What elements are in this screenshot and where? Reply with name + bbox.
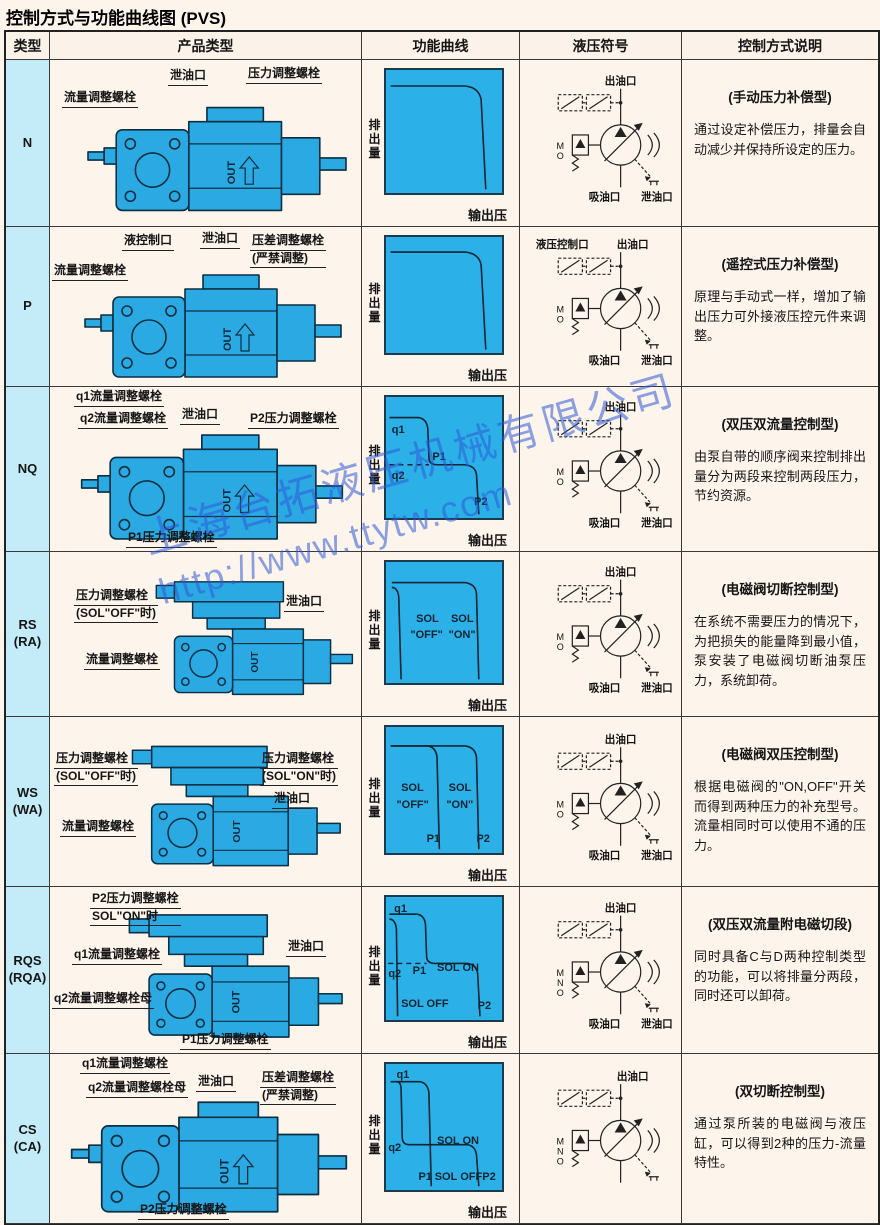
curve-annotation: P2 <box>476 833 489 845</box>
symbol-cell: 出油口 吸油口 泄油口 M O <box>520 60 682 227</box>
curve-x-label: 输出压 <box>468 1032 507 1051</box>
curve-annotation: P2 <box>482 1171 495 1183</box>
description-body: 同时具备C与D两种控制类型的功能，可以将排量分两段，同时还可以卸荷。 <box>694 947 866 1006</box>
callout: q1流量调整螺栓 <box>80 1056 170 1074</box>
svg-text:M: M <box>556 968 564 978</box>
callout: q2流量调整螺栓母 <box>52 991 154 1009</box>
pump-illustration: OUT <box>74 431 350 543</box>
callout: q2流量调整螺栓 <box>78 411 168 429</box>
type-code: N <box>23 135 32 152</box>
pump-out-port-label: OUT <box>226 161 238 185</box>
type-code: P <box>23 298 32 315</box>
callout: 流量调整螺栓 <box>60 819 136 837</box>
curve-annotation: q1 <box>394 903 407 915</box>
type-code: NQ <box>18 461 38 478</box>
pump-illustration: OUT <box>90 905 346 1049</box>
curve-plot: SOL "OFF" SOL "ON" P1 P2 <box>384 725 504 855</box>
curve-x-label: 输出压 <box>468 205 507 224</box>
curve-annotation: "ON" <box>449 629 476 641</box>
pump-illustration: OUT <box>86 100 348 218</box>
port-label-drain: 泄油口 <box>641 1017 673 1030</box>
curve-cell: 排出量 输出压 <box>362 60 520 227</box>
curve-annotation: P1 <box>427 833 440 845</box>
svg-text:O: O <box>557 151 564 161</box>
table-row-NQ: NQ OUT q1流量调整螺栓 q2流量调整螺栓 泄油口 P2压力调整螺栓 P1… <box>6 387 878 552</box>
product-cell: OUT 压力调整螺栓(SOL"OFF"时) 压力调整螺栓(SOL"ON"时) 泄… <box>50 717 362 887</box>
header-symbol: 液压符号 <box>520 32 682 60</box>
product-cell: OUT 压力调整螺栓(SOL"OFF"时) 泄油口 流量调整螺栓 <box>50 552 362 717</box>
callout: 泄油口 <box>196 1074 236 1092</box>
curve-y-label: 排出量 <box>366 946 383 988</box>
description-cell: (双切断控制型) 通过泵所装的电磁阀与液压缸，可以得到2种的压力-流量特性。 <box>682 1054 878 1224</box>
curve-graph <box>386 562 502 683</box>
svg-text:M: M <box>556 1137 564 1147</box>
hydraulic-circuit-drawing <box>558 252 659 351</box>
curve-annotation: SOL <box>416 613 439 625</box>
header-curve: 功能曲线 <box>362 32 520 60</box>
curve-annotation: q2 <box>388 1142 401 1154</box>
description-cell: (电磁阀切断控制型) 在系统不需要压力的情况下，为把损失的能量降到最小值，泵安装… <box>682 552 878 717</box>
port-label-drain: 泄油口 <box>641 354 673 367</box>
curve-cell: 排出量 q1 P1 q2 P2 输出压 <box>362 387 520 552</box>
callout: 压力调整螺栓 <box>246 66 322 84</box>
curve-annotation: P2 <box>478 1000 491 1012</box>
port-label-outlet: 出油口 <box>605 733 637 746</box>
curve-y-label: 排出量 <box>366 1114 383 1156</box>
type-cell: P <box>6 227 50 387</box>
pump-out-port-label: OUT <box>250 652 261 673</box>
type-code: RQS <box>13 953 41 970</box>
hydraulic-symbol: 出油口 吸油口 泄油口 M O <box>520 60 681 226</box>
description-cell: (电磁阀双压控制型) 根据电磁阀的"ON,OFF"开关而得到两种压力的补充型号。… <box>682 717 878 887</box>
pump-drawing <box>129 915 342 1037</box>
port-label-outlet: 出油口 <box>605 902 637 915</box>
curve-annotation: SOL <box>449 782 472 794</box>
svg-text:M: M <box>556 467 564 477</box>
port-label-drain: 泄油口 <box>641 681 673 694</box>
description-body: 在系统不需要压力的情况下，为把损失的能量降到最小值，泵安装了电磁阀切断油泵压力，… <box>694 612 866 690</box>
callout: q2流量调整螺栓母 <box>86 1080 188 1098</box>
curve-x-label: 输出压 <box>468 865 507 884</box>
pump-out-port-label: OUT <box>217 1158 231 1184</box>
callout: 压力调整螺栓(SOL"OFF"时) <box>74 588 158 623</box>
port-label-suction: 吸油口 <box>589 190 621 203</box>
callout: 泄油口 <box>200 231 240 249</box>
svg-text:O: O <box>557 315 564 325</box>
type-code-alt: (RQA) <box>9 970 47 987</box>
control-methods-table: 类型 产品类型 功能曲线 液压符号 控制方式说明 N OUT 流量调整螺栓 泄油… <box>4 30 880 1225</box>
catalog-page: 控制方式与功能曲线图 (PVS) 类型 产品类型 功能曲线 液压符号 控制方式说… <box>0 0 880 1225</box>
hydraulic-circuit-drawing <box>558 415 659 514</box>
curve-annotation: P1 <box>418 1171 431 1183</box>
hydraulic-circuit-drawing <box>558 580 659 679</box>
hydraulic-symbol: 出油口 吸油口 泄油口 M N O <box>520 887 681 1053</box>
type-code-alt: (CA) <box>14 1139 41 1156</box>
svg-text:O: O <box>557 642 564 652</box>
curve-graph <box>386 237 502 353</box>
curve-y-label: 排出量 <box>366 445 383 487</box>
callout: 流量调整螺栓 <box>84 652 160 670</box>
callout: 压力调整螺栓(SOL"OFF"时) <box>54 751 138 786</box>
symbol-cell: 出油口 吸油口 泄油口 M O <box>520 717 682 887</box>
curve-x-label: 输出压 <box>468 1202 507 1221</box>
hydraulic-symbol: 出油口 吸油口 泄油口 M O <box>520 717 681 886</box>
curve-annotation: SOL OFF <box>401 998 448 1010</box>
description-title: (双压双流量附电磁切段) <box>690 913 870 933</box>
curve-annotation: q1 <box>396 1069 409 1081</box>
callout: 泄油口 <box>286 939 326 957</box>
curve-y-label: 排出量 <box>366 119 383 161</box>
product-cell: OUT q1流量调整螺栓 q2流量调整螺栓 泄油口 P2压力调整螺栓 P1压力调… <box>50 387 362 552</box>
curve-plot: q1 q2 SOL ON P1 SOL OFF P2 <box>384 1062 504 1192</box>
svg-text:O: O <box>557 477 564 487</box>
port-label-drain: 泄油口 <box>641 849 673 862</box>
port-label-outlet: 出油口 <box>605 401 637 414</box>
type-cell: CS (CA) <box>6 1054 50 1224</box>
description-title: (手动压力补偿型) <box>690 86 870 106</box>
hydraulic-circuit-drawing <box>558 916 659 1015</box>
type-code-alt: (WA) <box>13 802 43 819</box>
description-body: 由泵自带的顺序阀来控制排出量分为两段来控制两段压力，节约资源。 <box>694 447 866 506</box>
curve-plot <box>384 235 504 355</box>
type-code: CS <box>18 1122 36 1139</box>
description-title: (双切断控制型) <box>690 1080 870 1100</box>
curve-plot: q1 P1 q2 P2 <box>384 395 504 520</box>
curve-plot: q1 q2 P1 SOL ON SOL OFF P2 <box>384 895 504 1022</box>
callout: 泄油口 <box>168 68 208 86</box>
port-label-outlet: 出油口 <box>617 238 649 251</box>
callout: P2压力调整螺栓 <box>138 1202 229 1220</box>
curve-annotation: q2 <box>388 968 401 980</box>
curve-plot: SOL "OFF" SOL "ON" <box>384 560 504 685</box>
svg-text:N: N <box>557 1147 564 1157</box>
port-label-suction: 吸油口 <box>589 681 621 694</box>
curve-annotation: q2 <box>392 470 405 482</box>
type-cell: NQ <box>6 387 50 552</box>
hydraulic-circuit-drawing <box>558 747 659 846</box>
svg-text:M: M <box>556 800 564 810</box>
svg-text:O: O <box>557 988 564 998</box>
description-body: 通过泵所装的电磁阀与液压缸，可以得到2种的压力-流量特性。 <box>694 1114 866 1173</box>
callout: P2压力调整螺栓SOL"ON"时 <box>90 891 181 926</box>
table-header-row: 类型 产品类型 功能曲线 液压符号 控制方式说明 <box>6 32 878 60</box>
type-cell: RS (RA) <box>6 552 50 717</box>
port-label-outlet: 出油口 <box>605 75 637 88</box>
callout: 压力调整螺栓(SOL"ON"时) <box>260 751 338 786</box>
header-product: 产品类型 <box>50 32 362 60</box>
product-cell: OUT q1流量调整螺栓 q2流量调整螺栓母 泄油口 压差调整螺栓(严禁调整) … <box>50 1054 362 1224</box>
curve-plot <box>384 68 504 195</box>
type-code: RS <box>18 617 36 634</box>
callout: P1压力调整螺栓 <box>126 530 217 548</box>
port-label-suction: 吸油口 <box>589 516 621 529</box>
port-label-drain: 泄油口 <box>641 190 673 203</box>
curve-x-label: 输出压 <box>468 530 507 549</box>
description-title: (电磁阀切断控制型) <box>690 578 870 598</box>
curve-annotation: SOL OFF <box>435 1171 482 1183</box>
pump-drawing <box>88 108 346 211</box>
curve-annotation: "ON" <box>446 799 473 811</box>
curve-annotation: P1 <box>413 965 426 977</box>
curve-annotation: SOL <box>451 613 474 625</box>
symbol-cell: 出油口 吸油口 泄油口 M N O <box>520 887 682 1054</box>
type-cell: N <box>6 60 50 227</box>
symbol-cell: 出油口 M N O <box>520 1054 682 1224</box>
curve-y-label: 排出量 <box>366 777 383 819</box>
port-label-suction: 吸油口 <box>589 849 621 862</box>
callout: q1流量调整螺栓 <box>74 389 164 407</box>
callout: q1流量调整螺栓 <box>72 947 162 965</box>
callout: 压差调整螺栓(严禁调整) <box>260 1070 336 1105</box>
curve-cell: 排出量 q1 q2 P1 SOL ON SOL OFF P2 输出压 <box>362 887 520 1054</box>
callout: 流量调整螺栓 <box>62 90 138 108</box>
pump-out-port-label: OUT <box>222 328 234 352</box>
callout: P1压力调整螺栓 <box>180 1032 271 1050</box>
callout: 泄油口 <box>272 791 312 809</box>
curve-cell: 排出量 q1 q2 SOL ON P1 SOL OFF P2 输出压 <box>362 1054 520 1224</box>
port-label-outlet: 出油口 <box>617 1070 649 1083</box>
callout: 压差调整螺栓(严禁调整) <box>250 233 326 268</box>
description-body: 通过设定补偿压力，排量会自动减少并保持所设定的压力。 <box>694 120 866 159</box>
header-description: 控制方式说明 <box>682 32 878 60</box>
page-title: 控制方式与功能曲线图 (PVS) <box>6 4 226 29</box>
table-row-P: P OUT 流量调整螺栓 液控制口 泄油口 压差调整螺栓(严禁调整) 排出量 <box>6 227 878 387</box>
port-label-pilot: 液压控制口 <box>536 238 589 251</box>
table-row-WS: WS (WA) OUT 压力调整螺栓(SOL"OFF"时) 压力调整螺栓(SOL… <box>6 717 878 887</box>
curve-annotation: SOL ON <box>437 962 479 974</box>
description-title: (电磁阀双压控制型) <box>690 743 870 763</box>
hydraulic-symbol: 出油口 吸油口 泄油口 M O <box>520 387 681 551</box>
hydraulic-symbol: 出油口 M N O <box>520 1054 681 1223</box>
description-body: 原理与手动式一样，增加了输出压力可外接液压控元件来调整。 <box>694 287 866 346</box>
pump-illustration: OUT <box>80 271 346 381</box>
svg-text:M: M <box>556 632 564 642</box>
curve-cell: 排出量 SOL "OFF" SOL "ON" P1 P2 输出压 <box>362 717 520 887</box>
description-body: 根据电磁阀的"ON,OFF"开关而得到两种压力的补充型号。流量相同时可以使用不通… <box>694 777 866 855</box>
callout: P2压力调整螺栓 <box>248 411 339 429</box>
pump-out-port-label: OUT <box>221 489 233 513</box>
curve-annotation: q1 <box>392 424 405 436</box>
description-cell: (遥控式压力补偿型) 原理与手动式一样，增加了输出压力可外接液压控元件来调整。 <box>682 227 878 387</box>
svg-text:O: O <box>557 810 564 820</box>
port-label-suction: 吸油口 <box>589 354 621 367</box>
symbol-cell: 液压控制口 出油口 吸油口 泄油口 M O <box>520 227 682 387</box>
pump-out-port-label: OUT <box>231 820 243 843</box>
product-cell: OUT 流量调整螺栓 液控制口 泄油口 压差调整螺栓(严禁调整) <box>50 227 362 387</box>
callout: 泄油口 <box>180 407 220 425</box>
type-cell: WS (WA) <box>6 717 50 887</box>
description-title: (双压双流量控制型) <box>690 413 870 433</box>
port-label-outlet: 出油口 <box>605 566 637 579</box>
curve-graph <box>386 70 502 193</box>
pump-drawing <box>82 435 343 539</box>
curve-annotation: SOL <box>401 782 424 794</box>
curve-y-label: 排出量 <box>366 610 383 652</box>
description-cell: (双压双流量附电磁切段) 同时具备C与D两种控制类型的功能，可以将排量分两段，同… <box>682 887 878 1054</box>
table-row-CS: CS (CA) OUT q1流量调整螺栓 q2流量调整螺栓母 泄油口 压差调整螺… <box>6 1054 878 1224</box>
curve-cell: 排出量 输出压 <box>362 227 520 387</box>
svg-text:O: O <box>557 1157 564 1167</box>
hydraulic-circuit-drawing <box>558 1084 659 1183</box>
callout: 泄油口 <box>284 594 324 612</box>
hydraulic-symbol: 出油口 吸油口 泄油口 M O <box>520 552 681 716</box>
callout: 液控制口 <box>122 233 174 251</box>
product-cell: OUT 流量调整螺栓 泄油口 压力调整螺栓 <box>50 60 362 227</box>
svg-text:M: M <box>556 141 564 151</box>
table-row-RQS: RQS (RQA) OUT P2压力调整螺栓SOL"ON"时 q1流量调整螺栓 … <box>6 887 878 1054</box>
curve-annotation: P1 <box>432 451 445 463</box>
hydraulic-symbol: 液压控制口 出油口 吸油口 泄油口 M O <box>520 227 681 386</box>
curve-annotation: "OFF" <box>396 799 428 811</box>
header-type: 类型 <box>6 32 50 60</box>
pump-out-port-label: OUT <box>231 990 243 1013</box>
curve-y-label: 排出量 <box>366 282 383 324</box>
callout: 流量调整螺栓 <box>52 263 128 281</box>
port-label-drain: 泄油口 <box>641 516 673 529</box>
hydraulic-circuit-drawing <box>558 89 659 188</box>
description-title: (遥控式压力补偿型) <box>690 253 870 273</box>
curve-cell: 排出量 SOL "OFF" SOL "ON" 输出压 <box>362 552 520 717</box>
curve-x-label: 输出压 <box>468 365 507 384</box>
table-row-N: N OUT 流量调整螺栓 泄油口 压力调整螺栓 排出量 输出压 <box>6 60 878 227</box>
pump-drawing <box>85 275 341 377</box>
curve-x-label: 输出压 <box>468 695 507 714</box>
product-cell: OUT P2压力调整螺栓SOL"ON"时 q1流量调整螺栓 q2流量调整螺栓母 … <box>50 887 362 1054</box>
curve-annotation: P2 <box>474 496 487 508</box>
description-cell: (手动压力补偿型) 通过设定补偿压力，排量会自动减少并保持所设定的压力。 <box>682 60 878 227</box>
port-label-suction: 吸油口 <box>589 1017 621 1030</box>
svg-text:N: N <box>557 978 564 988</box>
type-code: WS <box>17 785 38 802</box>
svg-text:M: M <box>556 305 564 315</box>
description-cell: (双压双流量控制型) 由泵自带的顺序阀来控制排出量分为两段来控制两段压力，节约资… <box>682 387 878 552</box>
type-code-alt: (RA) <box>14 634 41 651</box>
curve-annotation: SOL ON <box>437 1135 479 1147</box>
table-row-RS: RS (RA) OUT 压力调整螺栓(SOL"OFF"时) 泄油口 流量调整螺栓… <box>6 552 878 717</box>
pump-drawing <box>72 1102 347 1211</box>
pump-illustration: OUT <box>66 1098 352 1216</box>
symbol-cell: 出油口 吸油口 泄油口 M O <box>520 552 682 717</box>
curve-annotation: "OFF" <box>410 629 442 641</box>
type-cell: RQS (RQA) <box>6 887 50 1054</box>
symbol-cell: 出油口 吸油口 泄油口 M O <box>520 387 682 552</box>
